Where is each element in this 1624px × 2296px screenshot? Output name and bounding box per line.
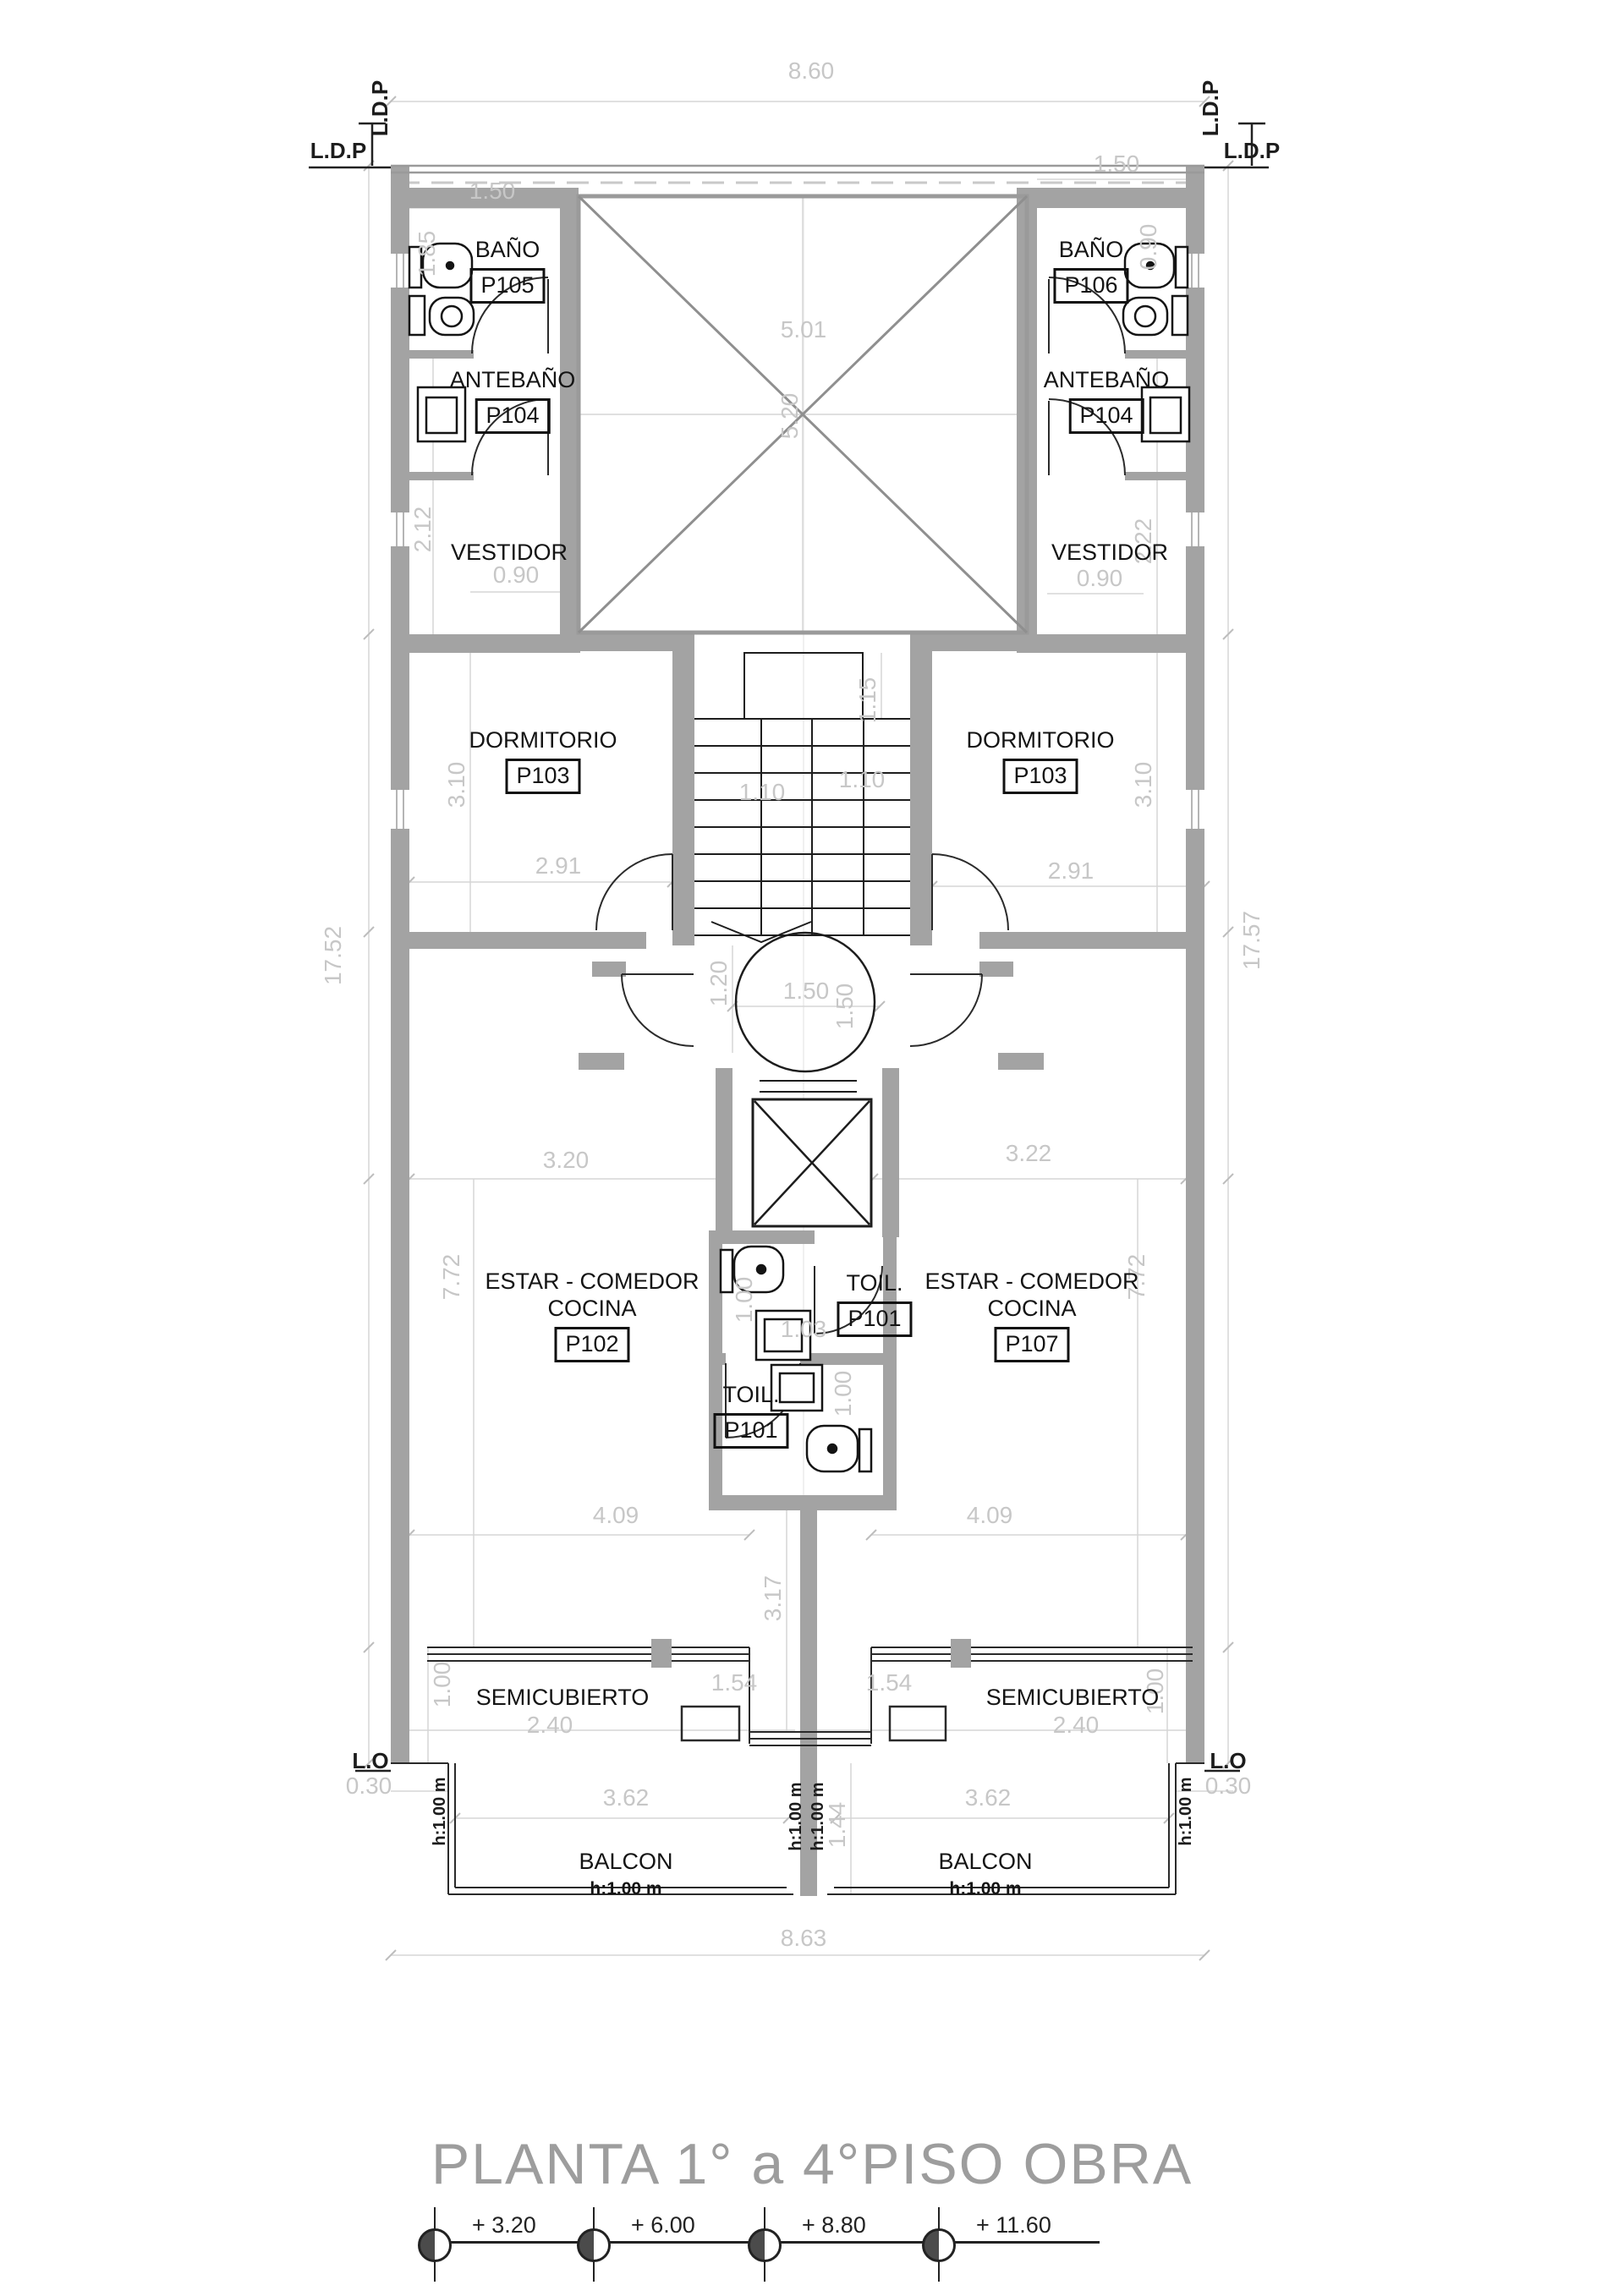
room-label: VESTIDOR bbox=[1051, 540, 1168, 567]
dim-label: 1.00 bbox=[431, 1662, 454, 1708]
room-name: DORMITORIO bbox=[469, 727, 617, 754]
room-label: BALCONh:1.00 m bbox=[579, 1849, 672, 1900]
room-name: TOIL. bbox=[837, 1270, 912, 1297]
room-name: BALCON bbox=[938, 1849, 1032, 1876]
level-label: + 3.20 bbox=[472, 2212, 536, 2238]
room-code: P106 bbox=[1053, 268, 1128, 304]
room-label: ESTAR - COMEDORCOCINAP107 bbox=[924, 1269, 1138, 1362]
dim-label: 1.50 bbox=[783, 979, 830, 1003]
dim-label: 7.72 bbox=[440, 1254, 464, 1301]
room-name: SEMICUBIERTO bbox=[476, 1685, 650, 1712]
level-label: + 6.00 bbox=[631, 2212, 695, 2238]
boundary-label: L.O bbox=[1210, 1750, 1246, 1772]
dim-label: 0.90 bbox=[493, 563, 540, 587]
boundary-label: L.D.P bbox=[369, 80, 391, 136]
room-code: P102 bbox=[554, 1327, 629, 1362]
room-name: DORMITORIO bbox=[967, 727, 1115, 754]
room-label: ESTAR - COMEDORCOCINAP102 bbox=[485, 1269, 699, 1362]
lvl-circle bbox=[748, 2228, 782, 2262]
dim-label: 4.09 bbox=[593, 1504, 639, 1527]
dim-label: 4.09 bbox=[967, 1504, 1013, 1527]
boundary-label: L.D.P bbox=[1199, 80, 1221, 136]
dim-label: 3.17 bbox=[761, 1575, 785, 1622]
lvl-hline bbox=[609, 2241, 754, 2247]
plan-linework bbox=[0, 0, 1624, 2296]
dim-label: 1.44 bbox=[826, 1802, 849, 1849]
room-name: TOIL. bbox=[713, 1382, 788, 1409]
dim-label: 0.90 bbox=[1137, 224, 1160, 271]
dim-label: 3.10 bbox=[1132, 762, 1155, 808]
dim-label: 3.22 bbox=[1006, 1142, 1052, 1165]
room-label: BAÑOP106 bbox=[1053, 237, 1128, 304]
dim-label: 1.15 bbox=[856, 677, 880, 724]
dim-label: 2.12 bbox=[411, 507, 435, 553]
room-label: ANTEBAÑOP104 bbox=[1044, 367, 1170, 434]
dim-label: 1.00 bbox=[831, 1371, 855, 1417]
room-code: P103 bbox=[1002, 759, 1078, 794]
room-note: h:1.00 m bbox=[938, 1879, 1032, 1900]
dim-label: 17.57 bbox=[1240, 911, 1264, 970]
level-label: + 11.60 bbox=[976, 2212, 1051, 2238]
lvl-circle bbox=[418, 2228, 452, 2262]
boundary-label: h:1.00 m bbox=[431, 1777, 448, 1845]
room-code: P103 bbox=[505, 759, 580, 794]
floor-plan: PLANTA 1° a 4°PISO OBRA 8.601.501.505.01… bbox=[0, 0, 1624, 2296]
room-label: SEMICUBIERTO bbox=[986, 1685, 1160, 1712]
level-marker: + 8.80 bbox=[748, 2207, 934, 2283]
dim-label: 3.10 bbox=[445, 762, 469, 808]
room-code: P107 bbox=[994, 1327, 1069, 1362]
boundary-label: L.O bbox=[352, 1750, 388, 1772]
lvl-circle bbox=[577, 2228, 611, 2262]
room-label: SEMICUBIERTO bbox=[476, 1685, 650, 1712]
elevator bbox=[753, 1081, 871, 1226]
room-name: COCINA bbox=[485, 1296, 699, 1323]
room-note: h:1.00 m bbox=[579, 1879, 672, 1900]
room-label: DORMITORIOP103 bbox=[967, 727, 1115, 794]
boundary-label: h:1.00 m bbox=[1177, 1777, 1194, 1845]
room-name: ANTEBAÑO bbox=[1044, 367, 1170, 394]
dim-label: 2.91 bbox=[1048, 859, 1095, 883]
boundary-label: L.D.P bbox=[1224, 140, 1280, 162]
room-label: ANTEBAÑOP104 bbox=[450, 367, 576, 434]
level-marker: + 11.60 bbox=[922, 2207, 1108, 2283]
level-label: + 8.80 bbox=[802, 2212, 866, 2238]
room-name: ESTAR - COMEDOR bbox=[485, 1269, 699, 1296]
dim-label: 1.00 bbox=[732, 1277, 756, 1323]
level-marker: + 6.00 bbox=[577, 2207, 763, 2283]
dim-label: 3.20 bbox=[543, 1148, 590, 1172]
top-boundary bbox=[391, 166, 1204, 173]
dim-label: 1.20 bbox=[707, 961, 731, 1007]
dim-label: 0.90 bbox=[1077, 567, 1123, 590]
boundary-label: h:1.00 m bbox=[787, 1782, 804, 1850]
room-label: BALCONh:1.00 m bbox=[938, 1849, 1032, 1900]
dim-label: 1.54 bbox=[711, 1671, 758, 1695]
room-name: SEMICUBIERTO bbox=[986, 1685, 1160, 1712]
room-label: TOIL.P101 bbox=[837, 1270, 912, 1337]
dim-label: 1.10 bbox=[739, 781, 786, 804]
lvl-circle bbox=[922, 2228, 956, 2262]
dim-label: 1.85 bbox=[415, 231, 439, 277]
dim-label: 2.40 bbox=[1053, 1713, 1100, 1737]
room-name: COCINA bbox=[924, 1296, 1138, 1323]
room-name: BAÑO bbox=[469, 237, 545, 264]
room-label: TOIL.P101 bbox=[713, 1382, 788, 1449]
dim-label: 8.63 bbox=[781, 1926, 827, 1950]
room-name: BALCON bbox=[579, 1849, 672, 1876]
room-label: DORMITORIOP103 bbox=[469, 727, 617, 794]
room-label: BAÑOP105 bbox=[469, 237, 545, 304]
dim-label: 5.20 bbox=[778, 393, 802, 440]
dim-label: 3.62 bbox=[603, 1786, 650, 1810]
dim-label: 1.50 bbox=[833, 984, 857, 1030]
lvl-hline bbox=[450, 2241, 595, 2247]
lvl-hline bbox=[954, 2241, 1100, 2247]
room-code: P101 bbox=[837, 1301, 912, 1337]
dim-label: 3.62 bbox=[965, 1786, 1012, 1810]
dim-label: 17.52 bbox=[321, 926, 345, 985]
page-title: PLANTA 1° a 4°PISO OBRA bbox=[431, 2131, 1193, 2197]
dim-label: 2.40 bbox=[527, 1713, 573, 1737]
boundary-label: L.D.P bbox=[310, 140, 366, 162]
dim-label: 5.01 bbox=[781, 318, 827, 342]
room-code: P105 bbox=[469, 268, 545, 304]
room-name: ANTEBAÑO bbox=[450, 367, 576, 394]
room-code: P104 bbox=[475, 398, 550, 434]
dim-label: 1.03 bbox=[781, 1318, 827, 1341]
room-name: VESTIDOR bbox=[1051, 540, 1168, 567]
dim-label: 0.30 bbox=[1205, 1774, 1252, 1798]
room-name: BAÑO bbox=[1053, 237, 1128, 264]
dim-label: 1.10 bbox=[839, 768, 886, 792]
dim-label: 2.91 bbox=[535, 854, 582, 878]
room-code: P101 bbox=[713, 1413, 788, 1449]
lvl-hline bbox=[780, 2241, 925, 2247]
dim-label: 1.50 bbox=[1094, 152, 1140, 176]
dim-label: 1.54 bbox=[866, 1671, 913, 1695]
level-marker: + 3.20 bbox=[418, 2207, 604, 2283]
room-code: P104 bbox=[1068, 398, 1144, 434]
room-label: VESTIDOR bbox=[451, 540, 568, 567]
boundary-label: h:1.00 m bbox=[809, 1782, 826, 1850]
dim-label: 1.50 bbox=[469, 179, 516, 203]
dim-label: 0.30 bbox=[346, 1774, 392, 1798]
room-name: ESTAR - COMEDOR bbox=[924, 1269, 1138, 1296]
room-name: VESTIDOR bbox=[451, 540, 568, 567]
dim-label: 8.60 bbox=[788, 59, 835, 83]
